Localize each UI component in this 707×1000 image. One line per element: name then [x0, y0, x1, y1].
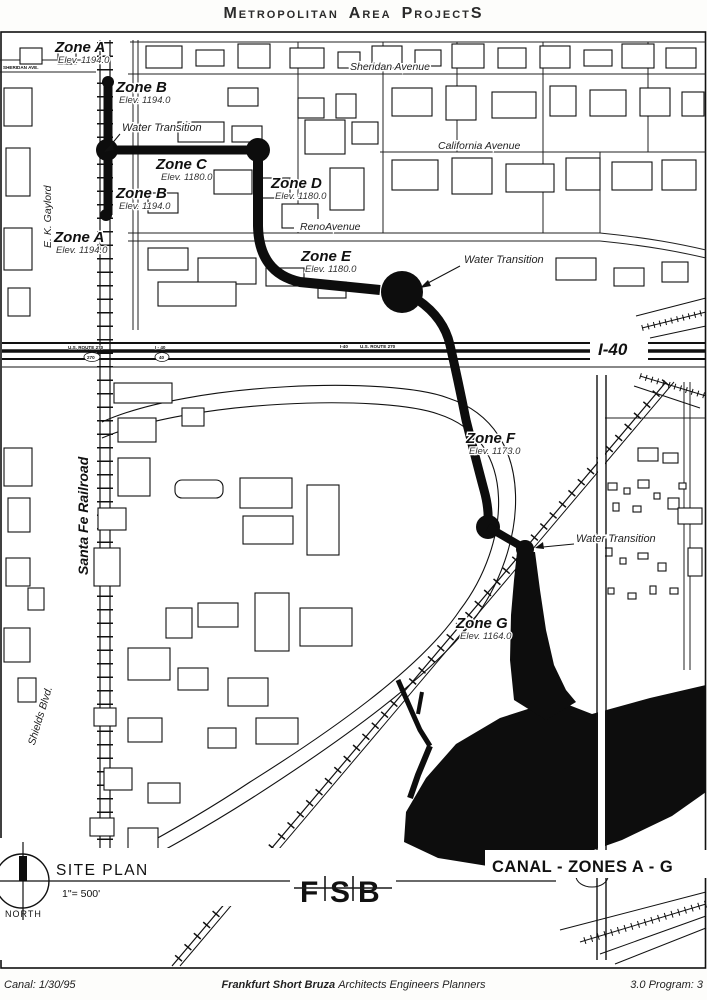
- zone-c-name: Zone C: [155, 156, 208, 173]
- shield-40-label: 40: [159, 355, 165, 360]
- title-p-rest: ROJECT: [414, 9, 471, 21]
- water-transition-3-label: Water Transition: [576, 533, 656, 545]
- title-m-rest: ETROPOLITAN: [239, 9, 339, 21]
- zone-b2-name: Zone B: [115, 185, 167, 202]
- fsb-letter-s: S: [330, 876, 350, 909]
- map-canvas: U.S. ROUTE 270 I - 40 I-40 U.S. ROUTE 27…: [0, 30, 707, 970]
- zone-e-elev: Elev. 1180.0: [305, 264, 357, 275]
- santa-fe-railroad-label: Santa Fe Railroad: [75, 456, 91, 575]
- title-block-footer: Canal: 1/30/95 Frankfurt Short Bruza Arc…: [0, 973, 707, 1000]
- i40-tiny-left-label: I - 40: [155, 345, 166, 350]
- site-plan-map: U.S. ROUTE 270 I - 40 I-40 U.S. ROUTE 27…: [0, 30, 707, 970]
- footer-program: 3.0 Program: 3: [630, 979, 703, 991]
- north-label: NORTH: [5, 909, 42, 919]
- zone-b1-elev: Elev. 1194.0: [119, 95, 171, 106]
- water-transition-1-label: Water Transition: [122, 122, 202, 134]
- canal-node-south-end: [100, 209, 112, 221]
- reno-avenue-label: RenoAvenue: [300, 221, 361, 233]
- ek-gaylord-label: E. K. Gaylord: [42, 184, 54, 248]
- zone-f-elev: Elev. 1173.0: [469, 446, 521, 457]
- footer-firm-desc: Architects Engineers Planners: [338, 979, 485, 991]
- zone-c-elev: Elev. 1180.0: [161, 172, 213, 183]
- water-transition-2-label: Water Transition: [464, 254, 544, 266]
- title-p-big: P: [402, 5, 415, 22]
- sheridan-avenue-label: Sheridan Avenue: [350, 61, 430, 73]
- canal-node-water-transition-2: [381, 271, 423, 313]
- footer-firm: Frankfurt Short Bruza Architects Enginee…: [0, 979, 707, 991]
- site-plan-title: SITE PLAN: [56, 862, 149, 879]
- california-avenue-label: California Avenue: [438, 140, 520, 152]
- zone-b1-name: Zone B: [115, 79, 167, 96]
- drawing-sheet: METROPOLITANAREAPROJECTS: [0, 0, 707, 1000]
- sheridan-ave-small-label: SHERIDAN AVE.: [3, 65, 38, 70]
- zone-d-elev: Elev. 1180.0: [275, 191, 327, 202]
- fsb-logo: F S B: [290, 868, 396, 910]
- i40-tiny-right-label: I-40: [340, 344, 348, 349]
- zone-a1-name: Zone A: [54, 39, 105, 56]
- zone-e-name: Zone E: [300, 248, 352, 265]
- zone-b2-elev: Elev. 1194.0: [119, 201, 171, 212]
- title-a-rest: REA: [362, 9, 391, 21]
- title-a-big: A: [349, 5, 363, 22]
- page-title: METROPOLITANAREAPROJECTS: [0, 0, 707, 30]
- zone-d-name: Zone D: [270, 175, 322, 192]
- zone-a1-elev: Elev. 1194.0: [58, 55, 110, 66]
- canal-node-top: [102, 76, 114, 88]
- i40-label: I-40: [598, 340, 628, 359]
- zone-a2-name: Zone A: [53, 229, 104, 246]
- zone-f-name: Zone F: [465, 430, 516, 447]
- shield-270-label: 270: [87, 355, 95, 360]
- zone-g-elev: Elev. 1164.0: [460, 631, 512, 642]
- sheet-title: CANAL - ZONES A - G: [492, 858, 673, 876]
- title-s-big: S: [471, 5, 484, 22]
- scale-label: 1"= 500': [62, 888, 100, 900]
- route-270-right-label: U.S. ROUTE 270: [360, 344, 396, 349]
- zone-a2-elev: Elev. 1194.0: [56, 245, 108, 256]
- zone-g-name: Zone G: [455, 615, 508, 632]
- route-270-left-label: U.S. ROUTE 270: [68, 345, 104, 350]
- fsb-letter-b: B: [358, 876, 380, 909]
- title-m-big: M: [223, 5, 238, 22]
- fsb-letter-f: F: [300, 876, 318, 909]
- footer-firm-name: Frankfurt Short Bruza: [221, 979, 335, 991]
